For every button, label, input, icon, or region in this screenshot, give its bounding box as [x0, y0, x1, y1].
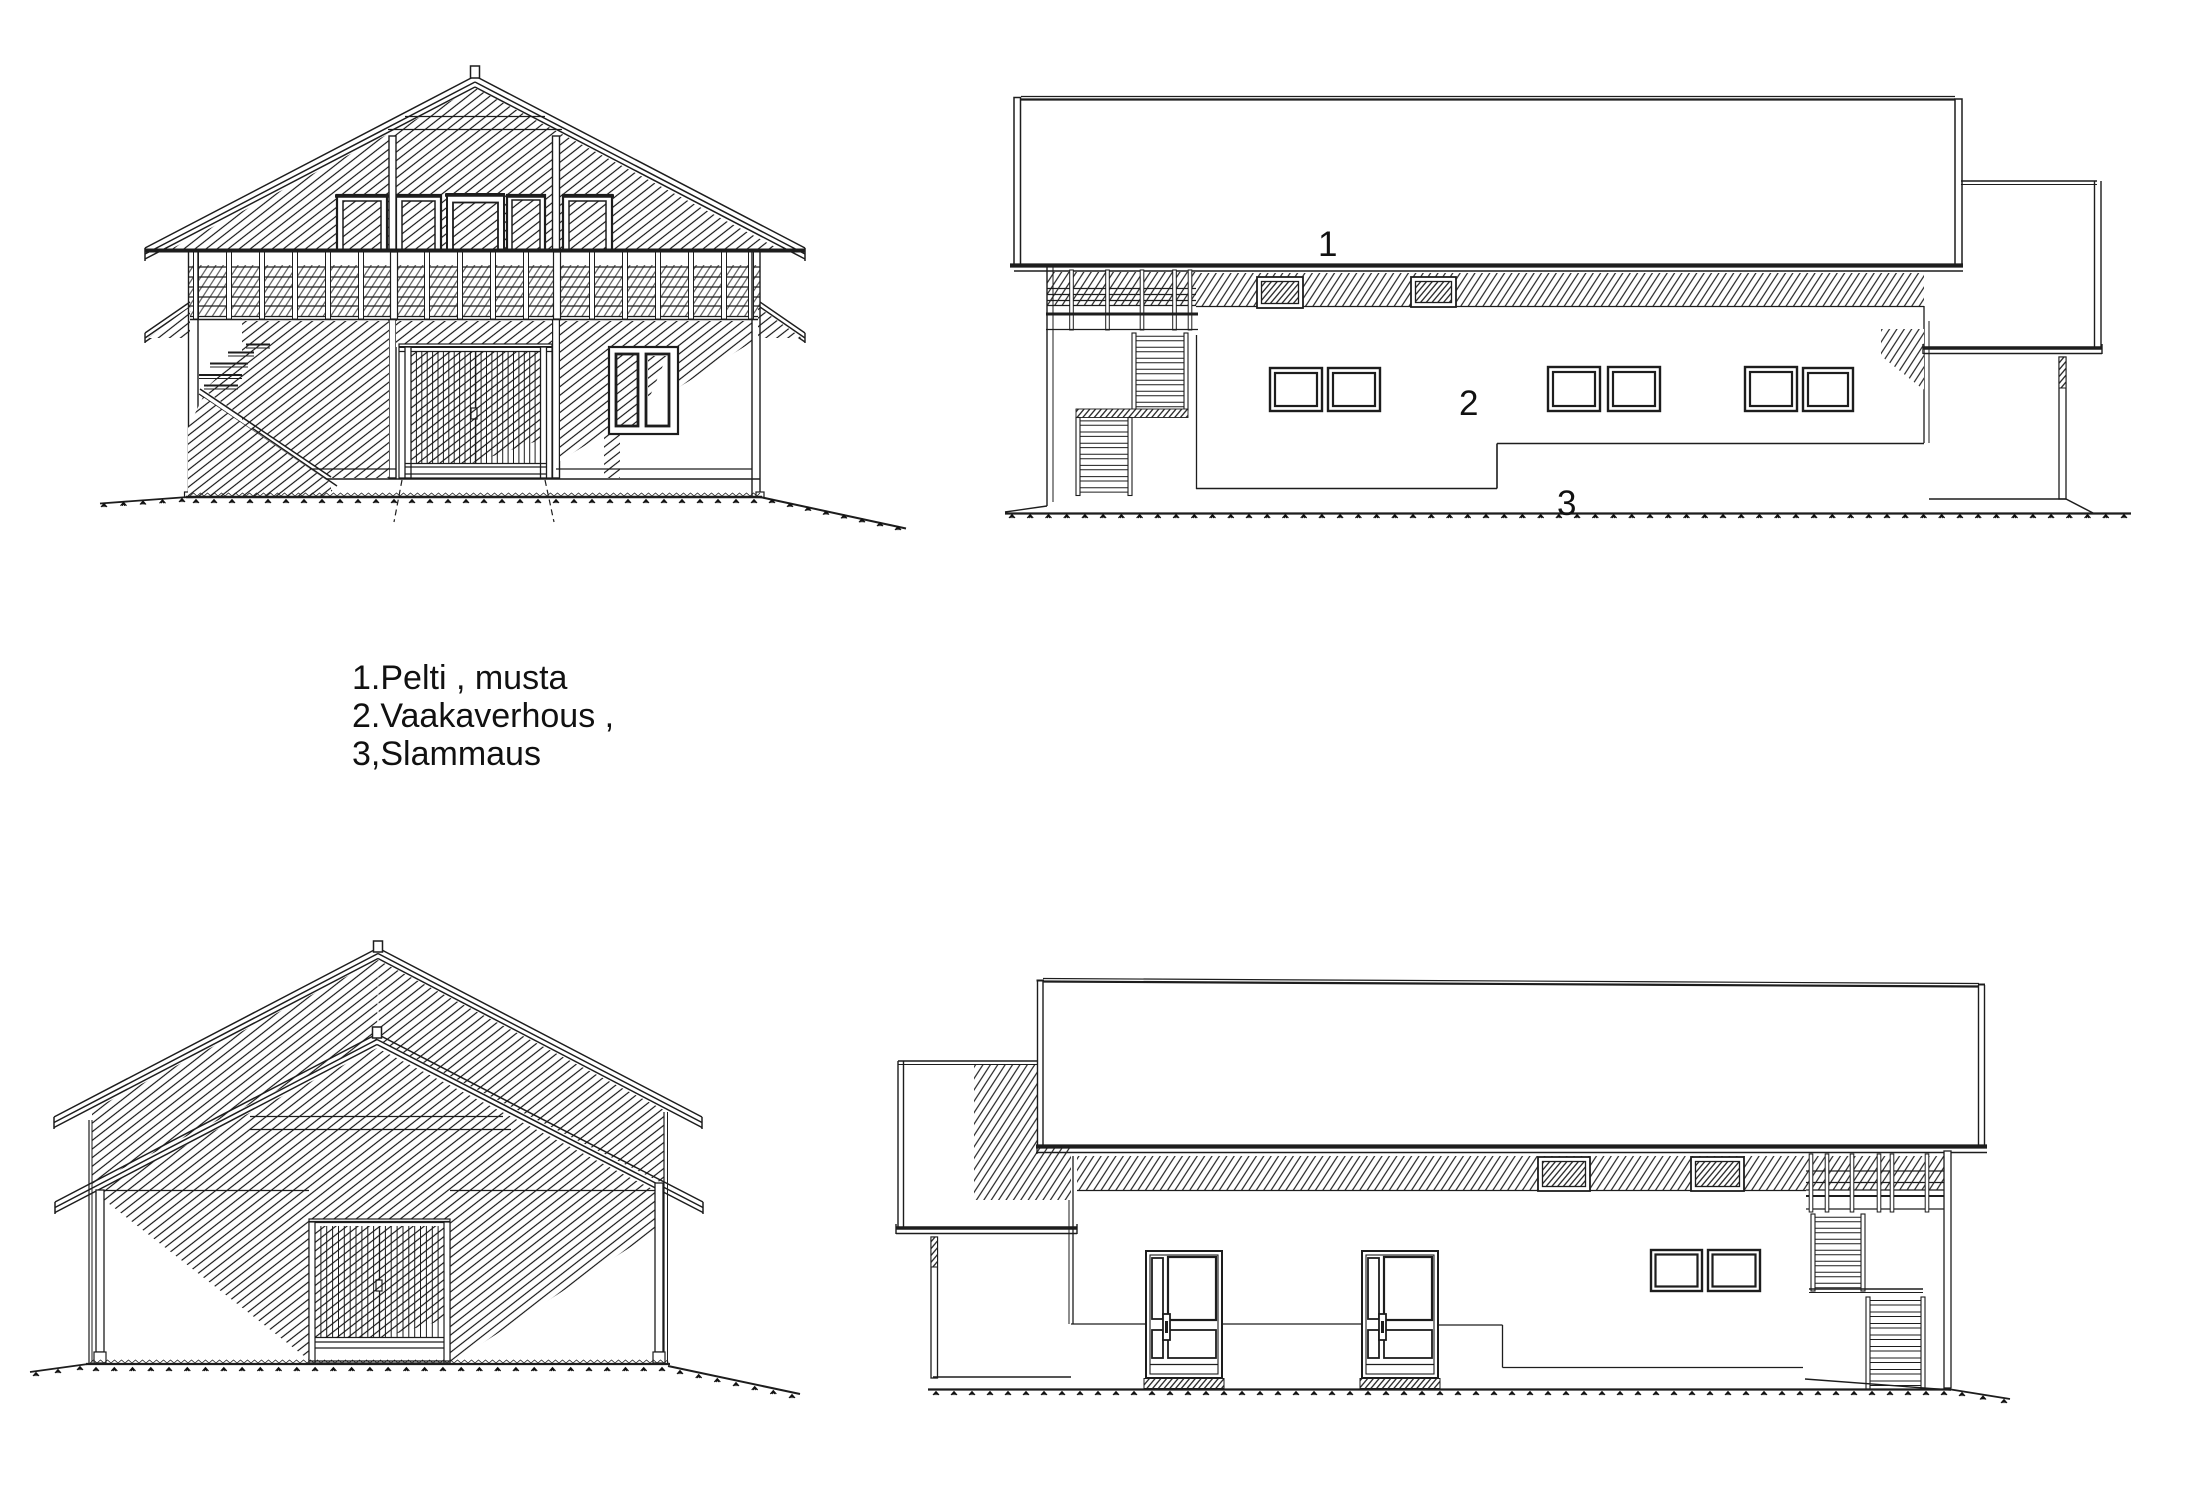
svg-text:2.Vaakaverhous ,: 2.Vaakaverhous ,: [352, 697, 614, 735]
svg-text:2: 2: [1459, 384, 1478, 423]
svg-text:3,Slammaus: 3,Slammaus: [352, 735, 541, 773]
svg-text:3: 3: [1557, 484, 1576, 523]
svg-text:1: 1: [1318, 225, 1337, 264]
svg-text:1.Pelti , musta: 1.Pelti , musta: [352, 659, 568, 697]
